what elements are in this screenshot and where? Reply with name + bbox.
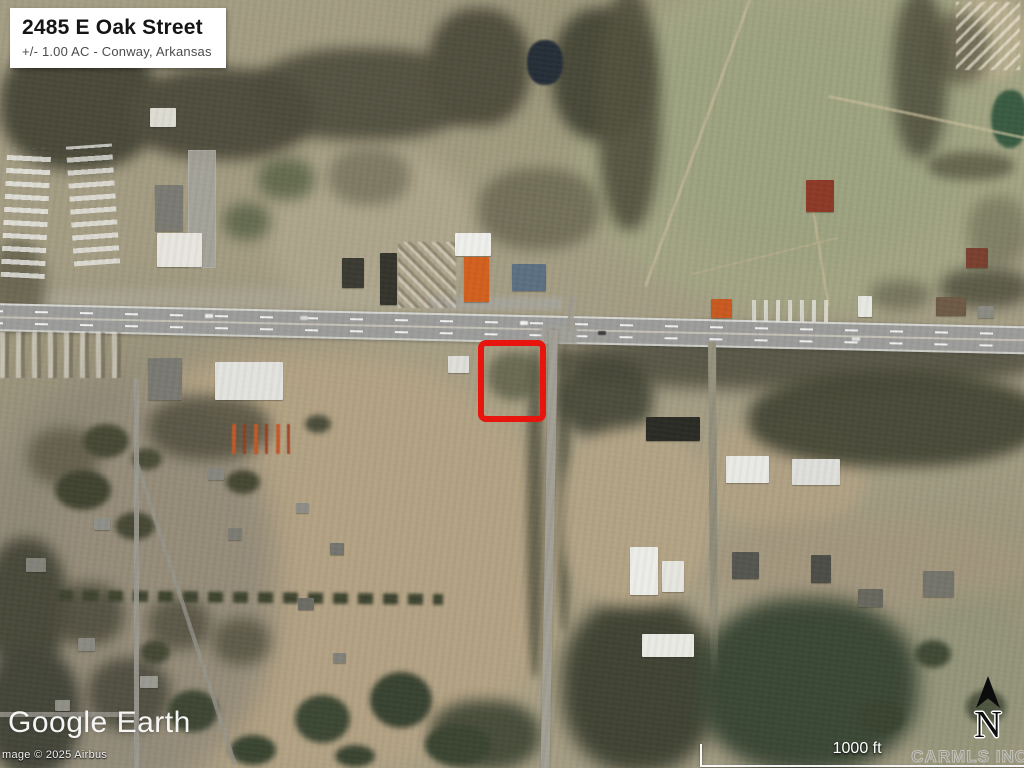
trailer-rows [1, 147, 52, 279]
imagery-attribution: mage © 2025 Airbus [2, 749, 107, 761]
scale-label: 1000 ft [833, 740, 882, 758]
house [732, 552, 759, 579]
church-building [157, 233, 202, 267]
north-indicator: N [958, 676, 1018, 742]
tree [305, 415, 331, 433]
trailer [858, 296, 872, 317]
tree [295, 695, 350, 743]
house [330, 543, 344, 555]
warehouse [662, 561, 684, 592]
warehouse [642, 634, 694, 657]
industrial-building [215, 362, 283, 400]
tree [226, 470, 260, 494]
house [811, 555, 831, 583]
house [298, 598, 314, 610]
map-canvas: 2485 E Oak Street +/- 1.00 AC - Conway, … [0, 0, 1024, 768]
house [94, 518, 110, 530]
orange-equipment [232, 424, 292, 454]
tree-cluster [478, 168, 600, 250]
property-details: +/- 1.00 AC - Conway, Arkansas [22, 44, 212, 59]
truck-row [752, 300, 834, 322]
scrub-patch [328, 148, 410, 205]
road-side-east [708, 342, 718, 677]
house [978, 306, 994, 318]
google-earth-logo: Google Earth [8, 706, 191, 740]
church-building [155, 185, 183, 231]
north-label: N [958, 708, 1018, 742]
tree [860, 700, 904, 734]
orange-roof-building [464, 257, 489, 302]
mls-watermark: CARMLS INC [911, 747, 1024, 767]
forest-patch [698, 598, 918, 768]
junkyard [0, 332, 128, 378]
tree [55, 470, 111, 510]
building [448, 356, 469, 373]
vehicle [520, 321, 528, 325]
tree [83, 424, 129, 458]
vehicle [598, 331, 606, 335]
industrial-building [148, 358, 182, 400]
property-boundary-marker [478, 340, 546, 422]
forest-patch [598, 0, 660, 230]
house [858, 589, 883, 607]
house [140, 676, 158, 688]
building [342, 258, 364, 288]
tree [425, 725, 491, 765]
forest-patch [558, 358, 653, 438]
house [26, 558, 46, 572]
tree [140, 640, 170, 664]
building [380, 253, 397, 305]
blue-roof-building [512, 264, 546, 291]
warehouse [792, 459, 840, 485]
house [923, 571, 954, 597]
forest-patch [562, 598, 717, 768]
house [78, 638, 95, 651]
house [936, 297, 966, 316]
forest-patch [748, 372, 1024, 467]
orange-roof-building [711, 299, 732, 318]
tree [230, 735, 276, 765]
vehicle [852, 337, 860, 341]
vehicle [300, 316, 308, 320]
pond [527, 40, 563, 85]
barn [806, 180, 834, 212]
forest-patch [428, 8, 530, 126]
house [228, 528, 242, 540]
house [208, 468, 224, 480]
tree [370, 672, 432, 728]
house [966, 248, 988, 268]
property-label-card: 2485 E Oak Street +/- 1.00 AC - Conway, … [10, 8, 226, 68]
tree-cluster [223, 203, 270, 240]
property-address: 2485 E Oak Street [22, 15, 212, 41]
building [150, 108, 176, 127]
salvage-yard [398, 242, 456, 308]
rocky-speckles [956, 2, 1020, 70]
house [333, 653, 346, 663]
lane-marking [0, 316, 1024, 341]
warehouse [630, 547, 658, 595]
trailer-rows [66, 144, 120, 267]
building [455, 233, 491, 256]
vehicle [205, 314, 213, 318]
tree-cluster [213, 618, 270, 665]
warehouse [726, 456, 769, 483]
tree [335, 745, 375, 767]
tree-row [870, 280, 930, 310]
dark-roof-building [646, 417, 700, 441]
tree-cluster [258, 158, 315, 200]
tree-row [928, 152, 1014, 180]
tree [915, 640, 951, 668]
house [296, 503, 309, 513]
pond [991, 90, 1024, 148]
